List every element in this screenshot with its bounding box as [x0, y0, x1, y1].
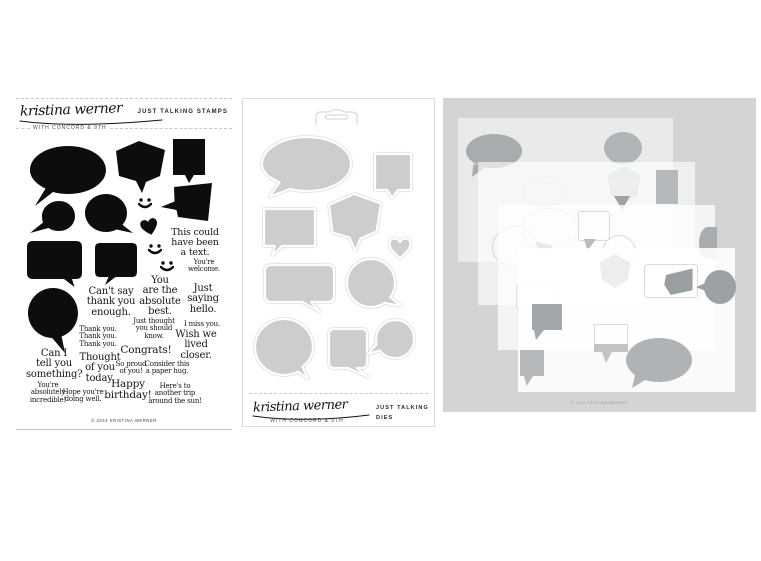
dash-segment	[16, 128, 30, 129]
dies-panel: kristina werner WITH CONCORD & 9TH JUST …	[242, 98, 435, 427]
sentiment-text: Just saying hello.	[178, 284, 228, 315]
bubble-tail-shape	[524, 376, 533, 386]
circle-speech-bubble-stamp-icon	[28, 288, 78, 353]
square-bubble-shape	[532, 304, 562, 330]
brand-signature: kristina werner	[253, 397, 348, 415]
display-panel: © 2024 KRISTINA WERNER	[443, 98, 756, 412]
rounded-rect-speech-bubble-stamp-icon	[95, 243, 137, 285]
sentiment-text: This could have been a text.	[162, 228, 228, 258]
hexagon-speech-bubble-die-icon	[326, 192, 384, 253]
product-collage: kristina werner JUST TALKING STAMPS WITH…	[0, 0, 761, 561]
circle-speech-bubble-left-tail-die-icon	[366, 317, 417, 362]
heart-stamp-icon	[139, 217, 159, 237]
smiley-face-stamp-icon	[160, 261, 174, 273]
sentiment-text: Consider this a paper hug.	[138, 361, 196, 376]
sentiment-text: You're welcome.	[180, 259, 228, 274]
sentiment-text: Congrats!	[120, 345, 172, 356]
smiley-face-stamp-icon	[138, 198, 152, 210]
bubble-bottom-shape	[594, 344, 628, 352]
rounded-rect-speech-bubble-stamp-icon	[27, 241, 82, 287]
smiley-face-stamp-icon	[148, 244, 162, 256]
stamps-title: JUST TALKING STAMPS	[138, 109, 228, 115]
footer-divider	[249, 393, 428, 394]
round-bubble-shape	[604, 132, 642, 164]
dash-segment	[110, 128, 232, 129]
round-speech-bubble-left-tail-stamp-icon	[30, 201, 75, 233]
bubble-tail-shape	[534, 330, 544, 340]
brand-signature: kristina werner	[20, 100, 123, 120]
vellum-sheet	[518, 248, 735, 392]
round-speech-bubble-right-tail-stamp-icon	[85, 194, 133, 233]
copyright-text: © 2024 KRISTINA WERNER	[482, 401, 717, 406]
sentiment-text: I miss you.	[176, 321, 228, 328]
dies-title: JUST TALKING DIES	[376, 404, 429, 424]
sentiment-text: Wish we lived closer.	[168, 330, 224, 361]
oval-speech-bubble-die-icon	[259, 134, 354, 199]
sentiment-text: Can't say thank you enough.	[80, 287, 142, 318]
sentiment-text: Here's to another trip around the sun!	[144, 383, 206, 405]
square-speech-bubble-stamp-icon	[173, 139, 205, 183]
brand-tagline: WITH CONCORD & 9TH	[30, 125, 110, 131]
brand-tagline: WITH CONCORD & 9TH	[243, 418, 371, 424]
hexagon-bubble-shape	[598, 254, 632, 288]
circle-speech-bubble-right-tail-die-icon	[344, 256, 404, 309]
small-rounded-rect-speech-bubble-die-icon	[326, 326, 371, 379]
tagline-row: WITH CONCORD & 9TH	[16, 125, 232, 131]
stamps-panel: kristina werner JUST TALKING STAMPS WITH…	[16, 98, 232, 430]
square-bubble-shape	[656, 170, 678, 204]
tilted-speech-bubble-stamp-icon	[161, 183, 212, 223]
copyright-text: © 2024 KRISTINA WERNER	[32, 418, 216, 423]
square-bubble-shape	[520, 350, 544, 376]
rounded-rect-speech-bubble-die-icon	[262, 262, 337, 314]
bubble-tail-shape	[602, 352, 612, 363]
round-bubble-shape	[704, 270, 736, 304]
circle-speech-bubble-die-icon	[252, 317, 319, 381]
outline-bubble-shape	[578, 211, 610, 241]
sentiment-text: Thank you. Thank you. Thank you.	[78, 326, 118, 348]
hexagon-speech-bubble-stamp-icon	[116, 141, 165, 193]
rect-speech-bubble-die-icon	[261, 206, 318, 258]
hang-tab-die-icon	[313, 109, 360, 125]
